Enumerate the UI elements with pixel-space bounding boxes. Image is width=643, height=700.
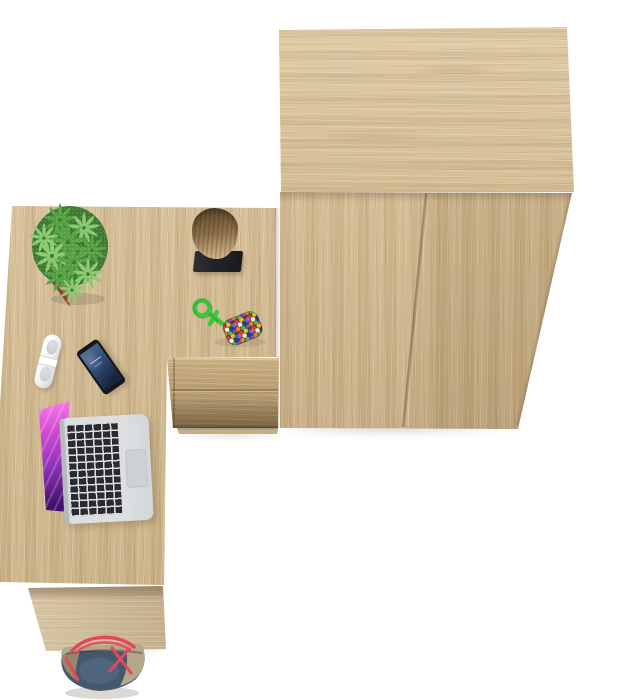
wardrobe-right-edge [515, 191, 572, 426]
wardrobe-front-doors [280, 192, 572, 429]
drawer-unit-front [167, 358, 279, 428]
potted-plant [16, 196, 121, 312]
drawer-left-seam [173, 358, 175, 428]
laptop-body [59, 414, 153, 525]
scene [0, 0, 643, 700]
wood-stump [192, 208, 238, 259]
remote-button-bottom [38, 366, 52, 383]
drawer-unit-plinth [176, 428, 278, 434]
lockscreen-text-line [95, 361, 103, 367]
remote-button-top [44, 338, 58, 355]
wardrobe-door-seam [402, 193, 428, 427]
succulent-foliage [28, 203, 110, 303]
laptop-keyboard [66, 422, 123, 517]
drawer-divider-seam [172, 389, 279, 391]
laptop-trackpad [125, 449, 148, 488]
bag-denim-highlight [79, 658, 119, 684]
beaded-keychain [180, 294, 270, 350]
wardrobe-top-panel [279, 27, 574, 192]
tote-bag [52, 628, 152, 700]
remote-middle-band [38, 355, 58, 368]
